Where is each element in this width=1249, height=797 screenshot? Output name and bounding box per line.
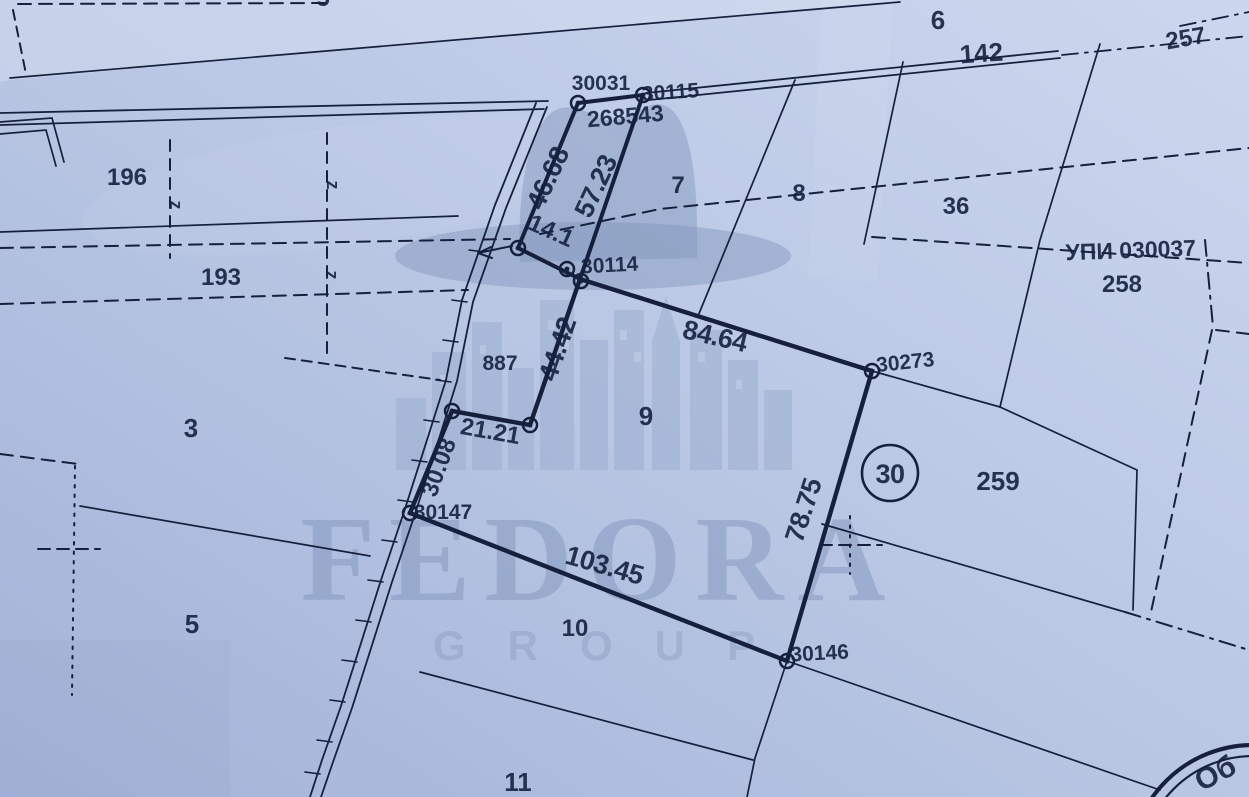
parcel-label-upi-030037: УПИ 030037 <box>1065 235 1196 266</box>
cadastral-map: FEDORA GROUP <box>0 0 1249 797</box>
point-label-30146: 30146 <box>790 640 850 666</box>
parcel-label-193: 193 <box>201 264 241 291</box>
cadastral-map-scan: FEDORA GROUP <box>0 0 1249 797</box>
top-edge-dashed-boundary <box>18 3 330 4</box>
parcel-label-6: 6 <box>931 5 945 35</box>
parcel-label-887: 887 <box>482 352 517 375</box>
parcel-label-10: 10 <box>562 615 589 642</box>
parcel-label-8: 8 <box>792 180 805 207</box>
z-boundary-mark-2: z <box>323 181 343 190</box>
parcel-label-259: 259 <box>976 466 1019 496</box>
z-boundary-mark-1: z <box>166 201 186 210</box>
z-boundary-mark-3: z <box>322 271 342 280</box>
point-label-30031: 30031 <box>572 72 631 95</box>
parcel-label-3: 3 <box>184 413 198 443</box>
circled-number-text: 30 <box>875 459 904 489</box>
parcel-label-11: 11 <box>504 767 532 797</box>
point-label-30147: 30147 <box>414 501 472 524</box>
paper-crease-1 <box>808 0 893 282</box>
parcel-label-7: 7 <box>671 172 684 199</box>
road-number-142: 142 <box>959 37 1004 70</box>
parcel-label-9: 9 <box>639 401 653 431</box>
paper-shadow-corner <box>0 640 230 797</box>
parcel-label-5: 5 <box>185 609 199 639</box>
point-label-30114: 30114 <box>580 253 639 279</box>
edge-partial-number: 5 <box>316 0 329 12</box>
parcel-label-36: 36 <box>943 193 970 220</box>
parcel-label-258: 258 <box>1102 271 1142 298</box>
parcel-label-196: 196 <box>107 164 147 191</box>
